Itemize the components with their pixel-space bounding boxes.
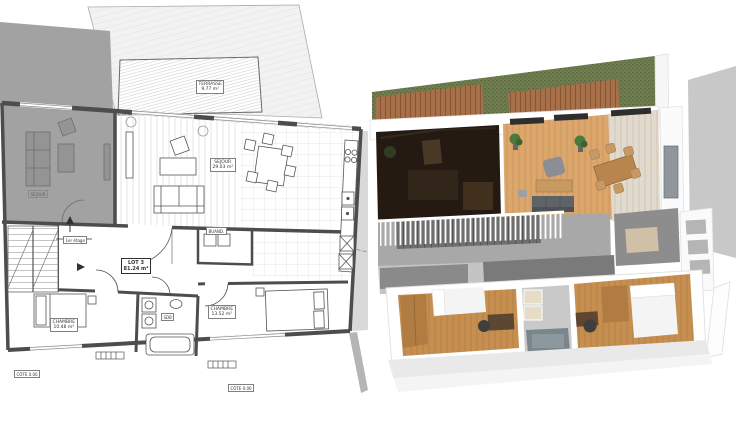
neighbor-sofa-symbol — [26, 132, 50, 186]
desk-3d — [488, 313, 515, 330]
bed-symbol — [265, 289, 328, 331]
bathtub-symbol — [146, 334, 194, 355]
sofa-3d — [532, 196, 574, 212]
label-cote-gauche: CÔTE 0.00 — [14, 370, 40, 378]
plan-2d-drawing — [0, 0, 368, 442]
nightstand-symbol — [88, 296, 96, 304]
desk-chair-3d — [478, 320, 490, 332]
plan-2d-panel: TERRASSE 9.77 m² SEJOUR 29.03 m² BUAND. … — [0, 0, 368, 442]
laundry-appliances-symbol — [204, 234, 230, 246]
desk-chair-3d — [584, 320, 597, 333]
bathroom-3d — [522, 285, 572, 354]
label-cote-bas: CÔTE 0.00 — [228, 384, 254, 392]
coffee-table-symbol — [160, 158, 196, 175]
dark-plant — [384, 146, 396, 158]
plan-3d-panel — [368, 0, 736, 442]
bedroom-left-3d — [398, 287, 519, 356]
dark-rug — [408, 170, 458, 200]
label-lot: LOT 3 81.24 m² — [121, 258, 151, 274]
pouf-3d — [518, 190, 527, 197]
hall-rug — [625, 227, 659, 253]
terrace — [118, 57, 262, 115]
dark-sofa — [463, 182, 493, 210]
dark-room — [376, 125, 501, 221]
dark-cabinet — [422, 139, 442, 165]
label-etage: 1er étage — [63, 236, 87, 244]
side-wall-3d — [706, 282, 730, 358]
plan-3d-render — [368, 0, 736, 442]
floorplan-composite: TERRASSE 9.77 m² SEJOUR 29.03 m² BUAND. … — [0, 0, 736, 442]
staircase — [8, 216, 92, 292]
sofa-symbol — [154, 186, 204, 213]
nightstand-symbol — [256, 288, 264, 296]
bath-shelf — [524, 306, 542, 320]
washer-dryer-symbol — [142, 298, 156, 328]
bed-3d — [432, 287, 486, 316]
sink-symbol — [170, 300, 182, 309]
neighbor-sideboard-symbol — [104, 144, 110, 180]
glass-door-3d — [664, 146, 678, 198]
living-room-3d — [503, 108, 660, 221]
label-buanderie: BUAND. — [206, 227, 227, 235]
neighbor-unit-left — [4, 105, 115, 224]
label-chambre-1: CHAMBRE 10.48 m² — [50, 318, 78, 332]
label-chambre-2: CHAMBRE 13.52 m² — [208, 305, 236, 319]
bedroom-right-3d — [574, 274, 694, 348]
sideboard-symbol — [126, 132, 133, 178]
bath-shelf — [524, 290, 542, 304]
label-voisin: SÉJOUR — [28, 190, 48, 198]
neighbor-table-symbol — [58, 144, 74, 172]
bed-3d — [630, 283, 678, 338]
label-sdb: SDB — [161, 313, 174, 321]
label-terrasse: TERRASSE 9.77 m² — [196, 80, 224, 94]
stair-right-arrow-icon — [77, 263, 85, 271]
console-table-3d — [536, 180, 572, 192]
right-neighbor-wall-bottom — [349, 332, 368, 393]
label-sejour: SEJOUR 29.03 m² — [210, 158, 236, 172]
wardrobe-3d — [601, 285, 629, 323]
neighbor-roof-block — [0, 22, 113, 110]
